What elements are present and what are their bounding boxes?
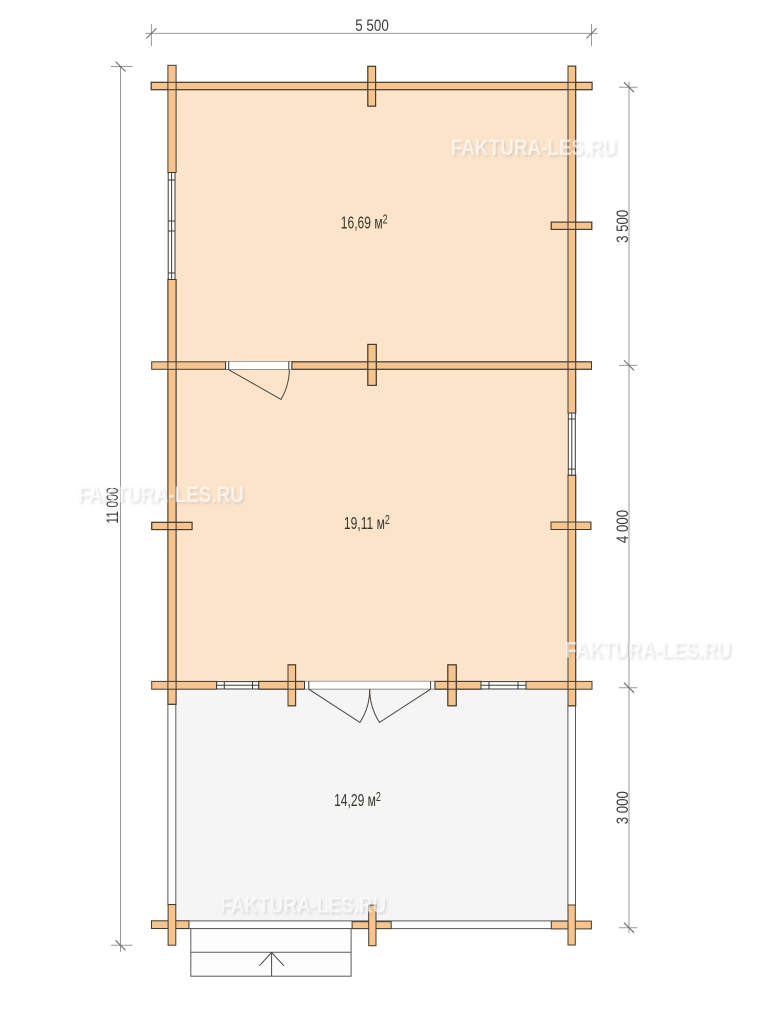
svg-text:19,11 м2: 19,11 м2 (344, 514, 390, 534)
svg-text:16,69 м2: 16,69 м2 (341, 213, 388, 233)
svg-text:FAKTURA-LES.RU: FAKTURA-LES.RU (220, 893, 386, 918)
svg-text:FAKTURA-LES.RU: FAKTURA-LES.RU (451, 136, 617, 161)
svg-text:3 000: 3 000 (614, 791, 633, 824)
svg-text:14,29 м2: 14,29 м2 (334, 791, 381, 811)
svg-text:FAKTURA-LES.RU: FAKTURA-LES.RU (78, 483, 244, 508)
svg-text:3 500: 3 500 (614, 210, 633, 243)
svg-text:4 000: 4 000 (614, 510, 633, 543)
svg-text:5 500: 5 500 (355, 17, 389, 36)
svg-text:FAKTURA-LES.RU: FAKTURA-LES.RU (565, 638, 731, 663)
